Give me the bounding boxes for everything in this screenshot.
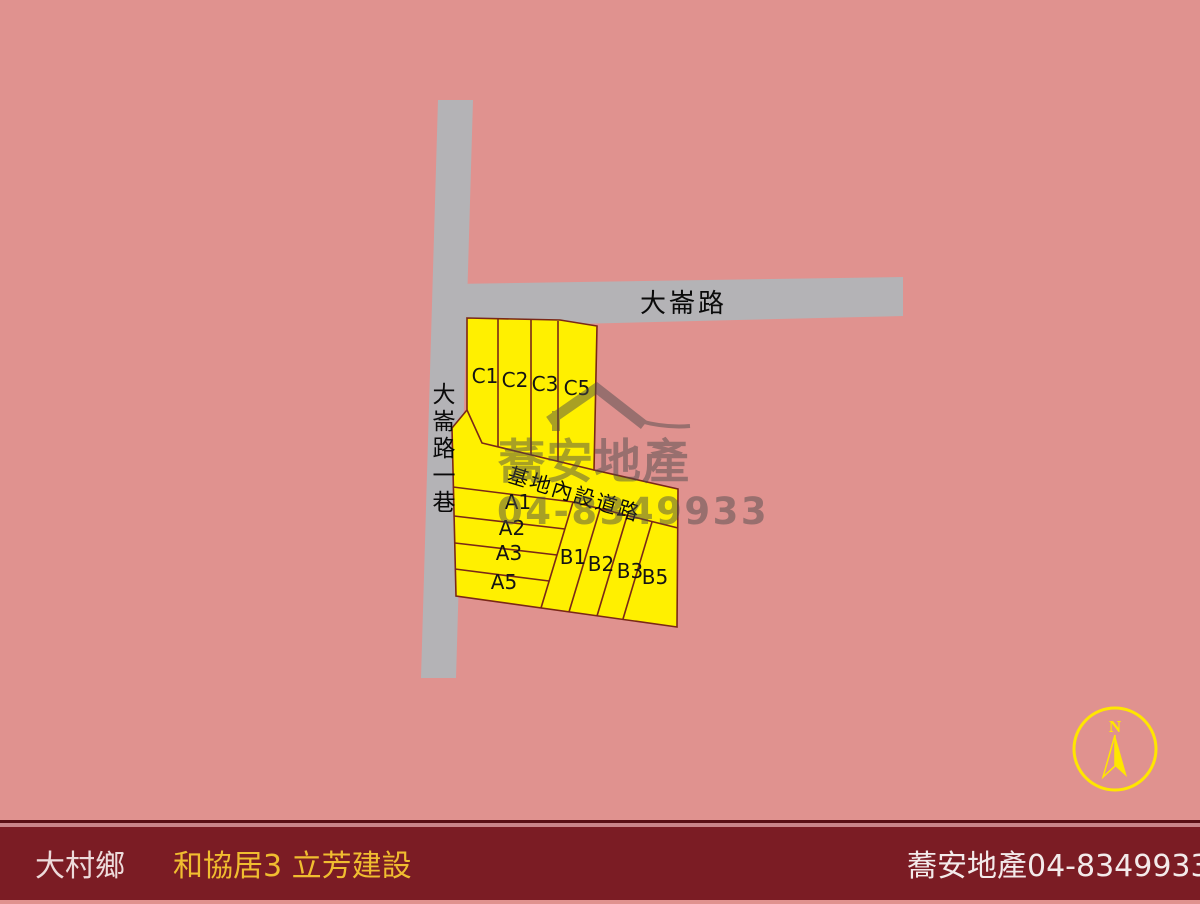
watermark-phone: 04-8349933	[497, 490, 769, 533]
plot-label-c1: C1	[472, 364, 499, 388]
plot-label-a5: A5	[491, 570, 517, 594]
plot-label-b3: B3	[617, 559, 643, 583]
road-label-main: 大崙路	[640, 289, 727, 319]
plot-label-c2: C2	[502, 368, 529, 392]
compass-north-label: N	[1109, 717, 1122, 736]
plot-label-b5: B5	[642, 565, 668, 589]
north-arrow-right-half	[1115, 735, 1127, 777]
site-plan-map: C1 C2 C3 C5 A1 A2 A3 A5 B1 B2 B3 B5 大崙路 …	[0, 0, 1200, 900]
footer-agency-phone: 04-8349933	[1027, 851, 1200, 883]
site-plan-slide: C1 C2 C3 C5 A1 A2 A3 A5 B1 B2 B3 B5 大崙路 …	[0, 0, 1200, 900]
compass: N	[1074, 708, 1156, 790]
plot-label-a3: A3	[496, 541, 522, 565]
footer-strip: 大村鄉 和協居3 立芳建設 蕎安地產 04-8349933	[0, 827, 1200, 900]
plot-label-c3: C3	[532, 372, 559, 396]
plot-label-b1: B1	[560, 545, 586, 569]
footer-agency-name: 蕎安地產	[907, 851, 1027, 883]
north-arrow-left-half	[1103, 735, 1115, 777]
road-label-side-lane: 大崙路一巷	[428, 382, 456, 517]
footer-project-name: 和協居3 立芳建設	[173, 851, 412, 883]
footer-bar: 大村鄉 和協居3 立芳建設 蕎安地產 04-8349933	[0, 820, 1200, 900]
footer-township: 大村鄉	[35, 851, 125, 883]
plot-label-b2: B2	[588, 552, 614, 576]
watermark-company: 蕎安地產	[498, 435, 690, 490]
